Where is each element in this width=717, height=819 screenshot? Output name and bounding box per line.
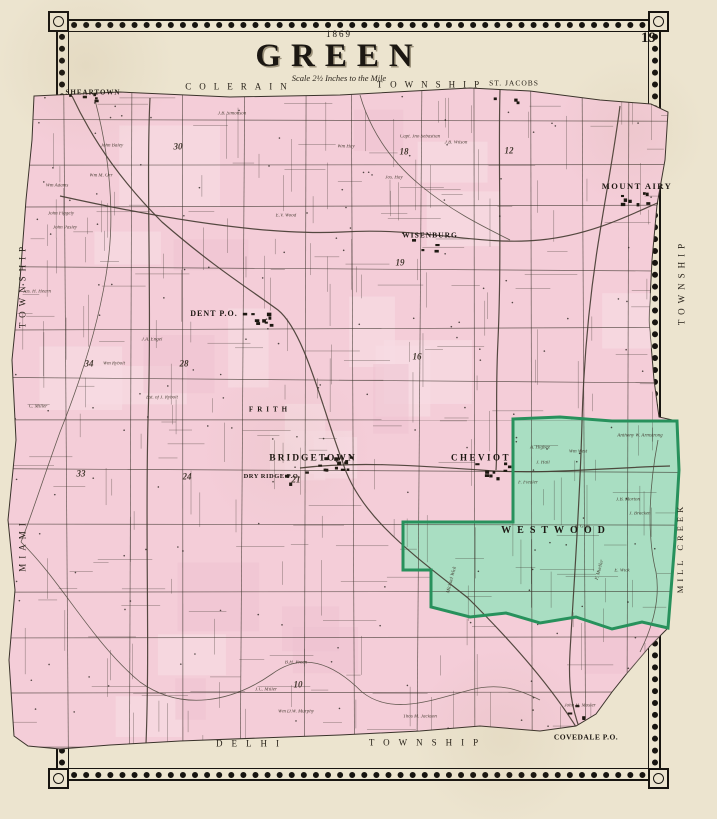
map-title: GREEN [255, 38, 422, 75]
page-number: 19 [641, 30, 656, 47]
atlas-sheet: COLERAINTOWNSHIPST. JACOBSTOWNSHIPMIAMIT… [0, 0, 717, 819]
map-canvas [0, 0, 717, 819]
title-block: 1869 GREEN Scale 2½ Inches to the Mile [255, 29, 422, 83]
